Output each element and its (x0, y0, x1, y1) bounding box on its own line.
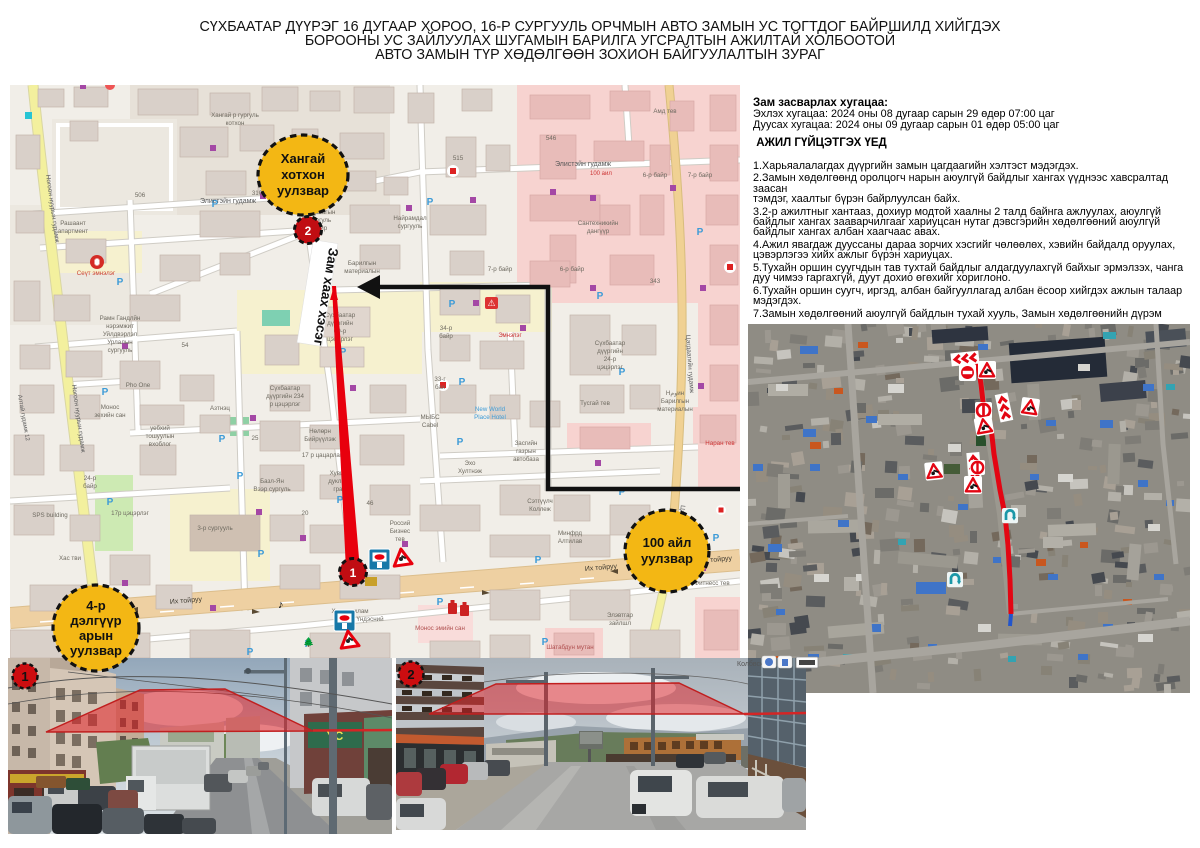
svg-text:Сүхбаатар: Сүхбаатар (270, 385, 301, 392)
svg-text:Коллеж: Коллеж (529, 506, 552, 513)
svg-text:Нومин: Нومин (666, 390, 684, 397)
svg-text:P: P (102, 387, 109, 398)
svg-text:котхон: котхон (226, 120, 245, 127)
svg-text:уулзвар: уулзвар (641, 551, 693, 566)
svg-text:материалын: материалын (657, 406, 693, 413)
svg-text:р цэцэрлэг: р цэцэрлэг (270, 401, 302, 408)
svg-text:78: 78 (117, 620, 124, 627)
svg-text:P: P (107, 497, 114, 508)
svg-text:Наран тев: Наран тев (705, 440, 735, 447)
svg-text:Pho One: Pho One (126, 382, 151, 389)
svg-text:Эмнэлэг: Эмнэлэг (498, 333, 522, 339)
svg-text:Засгийн: Засгийн (515, 440, 538, 447)
svg-text:автобаза: автобаза (513, 456, 539, 463)
svg-text:P: P (437, 597, 444, 608)
svg-text:материалын: материалын (344, 268, 380, 275)
svg-text:6-р байр: 6-р байр (643, 172, 668, 179)
svg-text:7-р байр: 7-р байр (688, 172, 713, 179)
svg-text:343: 343 (650, 278, 661, 285)
svg-text:Хас тви: Хас тви (59, 555, 82, 562)
svg-text:Фитнесс тев: Фитнесс тев (694, 580, 730, 587)
svg-text:17р цэцэрлэг: 17р цэцэрлэг (111, 510, 149, 517)
svg-text:сургууль: сургууль (398, 223, 423, 230)
svg-text:Бизнес: Бизнес (390, 528, 410, 535)
svg-text:Вээр сургуль: Вээр сургуль (253, 486, 290, 493)
svg-text:дүүргийн: дүүргийн (597, 348, 623, 355)
svg-text:⚠: ⚠ (487, 298, 495, 308)
svg-text:24-р: 24-р (604, 356, 617, 363)
svg-text:1: 1 (350, 566, 357, 580)
svg-text:тошуулын: тошуулын (146, 433, 175, 440)
svg-text:P: P (713, 533, 720, 544)
svg-text:вхоблог: вхоблог (149, 441, 172, 448)
svg-text:SPS building: SPS building (32, 512, 68, 519)
svg-text:Сүхбаатар: Сүхбаатар (595, 340, 626, 347)
svg-text:Барилгын: Барилгын (348, 260, 376, 267)
svg-text:24-р: 24-р (84, 475, 97, 482)
svg-text:Базл-Ян: Базл-Ян (260, 478, 284, 485)
svg-text:506: 506 (135, 192, 146, 199)
svg-text:Элистэйн гудамж: Элистэйн гудамж (555, 160, 611, 168)
svg-text:P: P (427, 197, 434, 208)
svg-text:2: 2 (305, 224, 312, 238)
svg-text:Амд тев: Амд тев (653, 108, 677, 115)
svg-text:Хангай: Хангай (281, 151, 325, 166)
svg-text:🌲: 🌲 (303, 636, 314, 647)
svg-text:Алтилав: Алтилав (558, 538, 583, 545)
svg-text:уулзвар: уулзвар (277, 183, 329, 198)
svg-text:Тусгай тев: Тусгай тев (580, 400, 610, 407)
svg-text:дүүргийн 234: дүүргийн 234 (266, 393, 304, 400)
svg-text:P: P (237, 471, 244, 482)
svg-text:New World: New World (475, 406, 506, 413)
svg-text:P: P (219, 434, 226, 445)
svg-text:Барилгын: Барилгын (661, 398, 689, 405)
svg-text:Сеүт эмнэлэг: Сеүт эмнэлэг (77, 270, 116, 277)
svg-text:P: P (247, 647, 254, 658)
svg-text:Шатабдун мутан: Шатабдун мутан (546, 644, 593, 651)
svg-text:Элэвтгар: Элэвтгар (607, 612, 634, 619)
svg-text:Хангай р гургуль: Хангай р гургуль (211, 112, 259, 119)
svg-text:зехийн сан: зехийн сан (94, 412, 125, 419)
svg-text:сургууль: сургууль (108, 347, 133, 354)
svg-text:зайлшл: зайлшл (609, 620, 631, 627)
svg-text:Монос: Монос (101, 404, 120, 411)
svg-text:Cabel: Cabel (422, 422, 438, 429)
svg-text:апартмент: апартмент (58, 228, 88, 235)
svg-text:25: 25 (252, 435, 259, 442)
svg-text:Уйлдвэрлэл: Уйлдвэрлэл (103, 331, 138, 338)
svg-text:P: P (457, 437, 464, 448)
svg-text:Россий: Россий (390, 520, 411, 527)
svg-text:Минфрд: Минфрд (558, 530, 582, 537)
svg-text:дүүргийн: дүүргийн (327, 320, 353, 327)
svg-text:P: P (449, 299, 456, 310)
svg-text:3-р сургууль: 3-р сургууль (197, 525, 232, 532)
svg-text:6-р байр: 6-р байр (560, 266, 585, 273)
svg-text:Урлалын: Урлалын (107, 339, 132, 346)
svg-text:546: 546 (546, 135, 557, 142)
svg-text:P: P (535, 555, 542, 566)
svg-text:P: P (597, 291, 604, 302)
svg-text:газрын: газрын (516, 448, 536, 455)
svg-text:Хултнэж: Хултнэж (458, 468, 483, 475)
svg-text:46: 46 (367, 500, 374, 507)
svg-text:100 аил: 100 аил (590, 171, 612, 177)
svg-text:цэцэрлэг: цэцэрлэг (597, 364, 623, 371)
svg-text:100 айл: 100 айл (643, 535, 692, 550)
svg-text:Сэтгүүлч: Сэтгүүлч (527, 498, 552, 505)
svg-text:байр: байр (83, 483, 97, 490)
svg-text:515: 515 (453, 155, 464, 162)
svg-text:17 р цацарлаг: 17 р цацарлаг (302, 452, 343, 459)
svg-text:Бийрүүлэж: Бийрүүлэж (304, 436, 336, 443)
svg-text:нэрэмжит: нэрэмжит (106, 323, 134, 330)
svg-text:20: 20 (302, 510, 309, 517)
svg-text:310: 310 (252, 190, 263, 197)
svg-text:7-р байр: 7-р байр (488, 266, 513, 273)
svg-text:хотхон: хотхон (281, 167, 325, 182)
svg-text:Рашаант: Рашаант (60, 220, 86, 227)
svg-text:P: P (697, 227, 704, 238)
svg-text:Их тойруу: Их тойруу (70, 607, 103, 615)
svg-text:Монос эмийн сан: Монос эмийн сан (415, 625, 465, 632)
svg-text:Эхо: Эхо (465, 460, 476, 467)
svg-text:Сантехникийн: Сантехникийн (578, 220, 618, 227)
svg-text:P: P (258, 549, 265, 560)
svg-text:Нөлөрн: Нөлөрн (309, 428, 331, 435)
svg-text:Элистэйн гудамж: Элистэйн гудамж (200, 197, 256, 205)
svg-text:Найрамдал: Найрамдал (393, 215, 427, 222)
svg-text:33-г: 33-г (434, 376, 446, 383)
svg-text:P: P (107, 649, 114, 658)
svg-text:Азтнэц: Азтнэц (210, 405, 230, 412)
svg-text:тев: тев (395, 536, 405, 543)
svg-text:34-р: 34-р (440, 325, 453, 332)
svg-text:байр: байр (439, 333, 453, 340)
svg-text:Рамн Гандлйн: Рамн Гандлйн (100, 315, 141, 322)
svg-text:Place Hotel: Place Hotel (474, 414, 506, 421)
svg-text:дангүүр: дангүүр (587, 228, 610, 235)
svg-text:P: P (117, 277, 124, 288)
svg-text:МЫБС: МЫБС (420, 414, 440, 421)
svg-text:54: 54 (182, 342, 189, 349)
svg-text:♪: ♪ (278, 599, 284, 611)
svg-text:P: P (459, 377, 466, 388)
svg-text:Үндэсний: Үндэсний (356, 616, 384, 623)
svg-text:уебхий: уебхий (150, 425, 170, 432)
svg-text:бах: бах (435, 384, 446, 391)
